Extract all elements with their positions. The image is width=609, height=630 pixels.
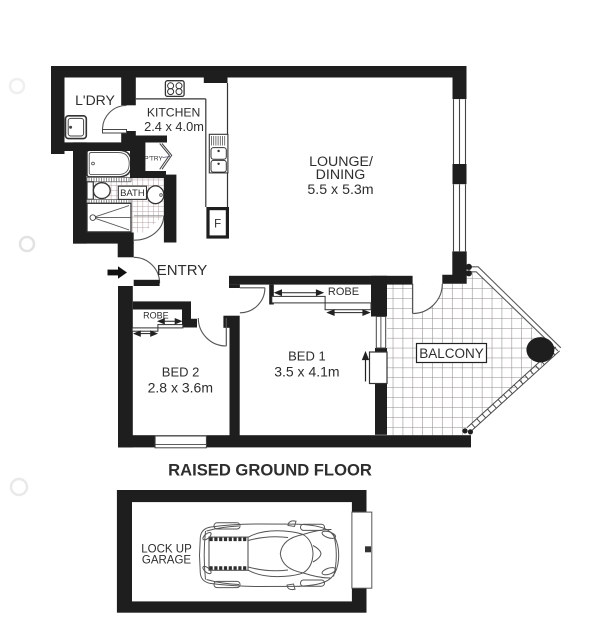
svg-text:L'DRY: L'DRY [75,92,115,108]
svg-text:ROBE: ROBE [143,310,169,320]
svg-text:3.5 x 4.1m: 3.5 x 4.1m [274,363,339,379]
svg-text:5.5 x 5.3m: 5.5 x 5.3m [307,182,373,198]
svg-text:P'TRY: P'TRY [144,156,163,163]
svg-text:KITCHEN: KITCHEN [147,106,201,120]
svg-text:BED 2: BED 2 [162,364,200,379]
svg-text:DINING: DINING [316,167,366,183]
svg-text:GARAGE: GARAGE [142,555,192,567]
svg-text:ROBE: ROBE [328,286,359,298]
svg-text:2.8 x 3.6m: 2.8 x 3.6m [148,379,213,395]
svg-text:F: F [214,219,221,231]
svg-text:RAISED GROUND FLOOR: RAISED GROUND FLOOR [168,460,372,479]
svg-text:BED 1: BED 1 [288,349,326,364]
svg-text:ENTRY: ENTRY [157,262,208,279]
svg-text:BALCONY: BALCONY [419,346,484,361]
svg-text:BATH: BATH [120,188,145,199]
svg-text:2.4 x 4.0m: 2.4 x 4.0m [144,119,204,134]
